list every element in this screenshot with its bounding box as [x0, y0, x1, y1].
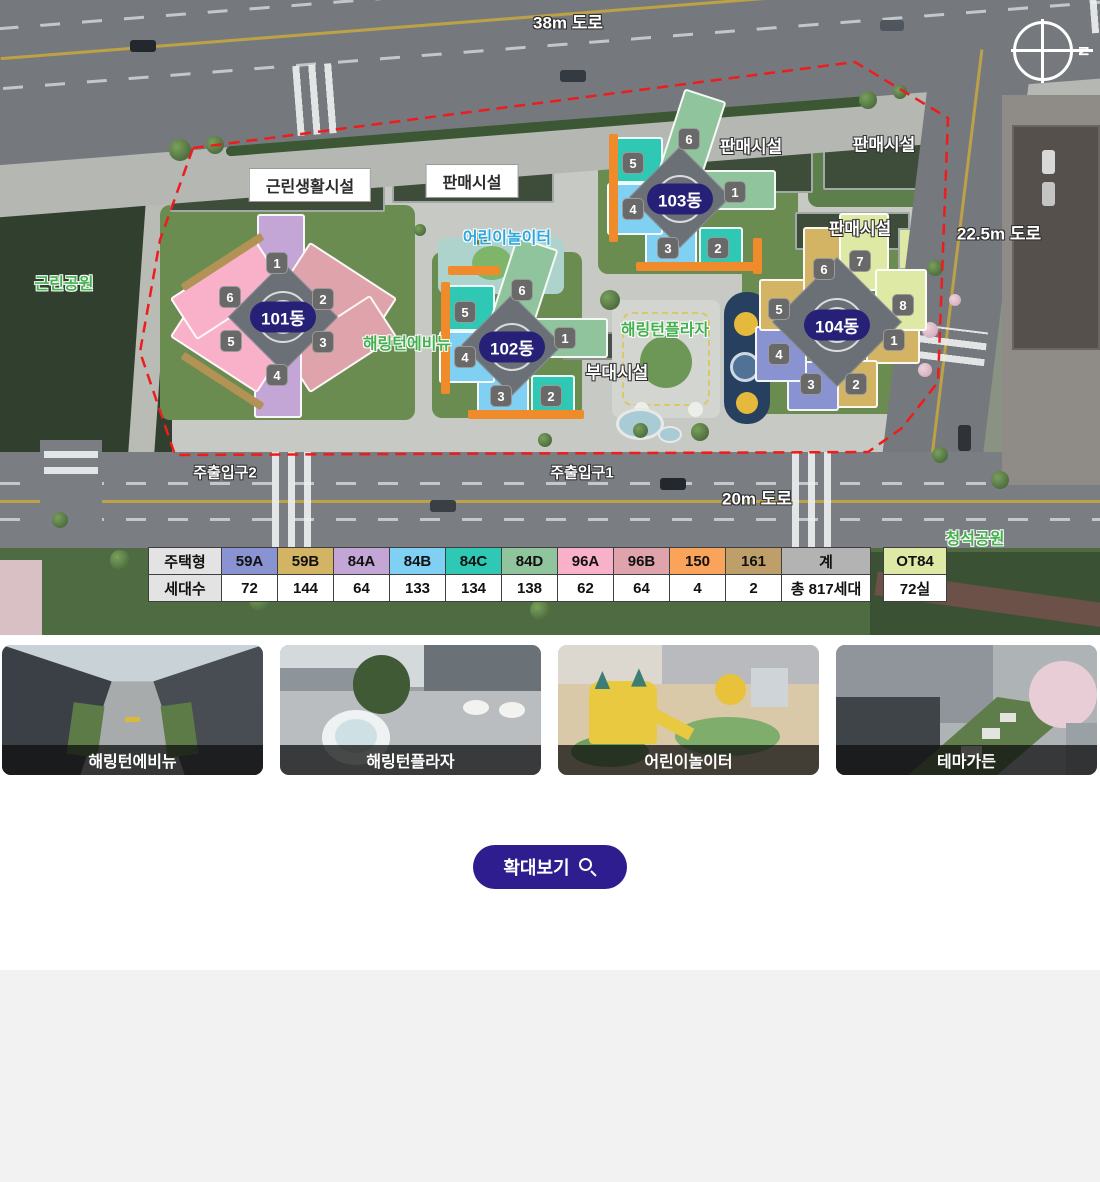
building-101-name-pill: 101동	[250, 302, 316, 333]
sales-facility-1-label: 판매시설	[426, 164, 519, 198]
type-cell-59A: 59A	[222, 548, 277, 574]
building-103-trim	[636, 262, 756, 271]
building-102-unit-chip-2: 2	[540, 385, 562, 407]
zoom-button-row: 확대보기	[0, 845, 1100, 889]
count-cell-96B: 64	[614, 575, 669, 601]
thumbnail-art	[499, 702, 525, 718]
entrance-2-label: 주출입구2	[193, 462, 257, 483]
thumbnail-art	[982, 728, 1000, 738]
building-104-unit-chip-3: 3	[800, 373, 822, 395]
magnifier-icon	[579, 858, 597, 876]
thumbnail-art	[353, 655, 410, 714]
zoom-in-button[interactable]: 확대보기	[473, 845, 626, 889]
thumbnail-label-theme-garden: 테마가든	[836, 745, 1097, 775]
road-20m-label: 20m 도로	[722, 485, 792, 510]
unit-count-row-header: 세대수	[149, 575, 221, 601]
count-cell-59A: 72	[222, 575, 277, 601]
children-playground-label: 어린이놀이터	[463, 224, 551, 248]
count-cell-84A: 64	[334, 575, 389, 601]
building-102-name-pill: 102동	[479, 332, 545, 363]
type-cell-59B: 59B	[278, 548, 333, 574]
road-22-5m-label: 22.5m 도로	[957, 220, 1041, 245]
building-102-unit-chip-1: 1	[554, 327, 576, 349]
avenue-label: 해링턴에비뉴	[363, 330, 451, 354]
building-101-unit-chip-3: 3	[312, 331, 334, 353]
type-cell-96B: 96B	[614, 548, 669, 574]
building-102-trim	[448, 266, 500, 275]
thumbnail-label-plaza: 해링턴플라자	[280, 745, 541, 775]
count-cell-84D: 138	[502, 575, 557, 601]
building-102-unit-chip-5: 5	[454, 301, 476, 323]
count-cell-150: 4	[670, 575, 725, 601]
road-38m-label: 38m 도로	[533, 9, 603, 34]
amenity-thumbnails: 해링턴에비뉴해링턴플라자어린이놀이터테마가든	[2, 645, 1098, 775]
building-101-unit-chip-1: 1	[266, 252, 288, 274]
building-103-unit-chip-3: 3	[657, 237, 679, 259]
type-cell-84B: 84B	[390, 548, 445, 574]
building-104-unit-chip-2: 2	[845, 373, 867, 395]
thumbnail-art	[751, 668, 788, 707]
sales-facility-4-label: 판매시설	[829, 215, 892, 240]
zoom-button-label: 확대보기	[503, 854, 569, 880]
building-104-unit-chip-7: 7	[849, 250, 871, 272]
thumbnail-theme-garden[interactable]: 테마가든	[836, 645, 1097, 775]
neighborhood-facility-label: 근린생활시설	[249, 168, 371, 202]
site-plan-page: 123456101동123456102동123456103동1234567810…	[0, 0, 1100, 1182]
type-cell-84D: 84D	[502, 548, 557, 574]
building-103-unit-chip-2: 2	[707, 237, 729, 259]
sales-facility-3-label: 판매시설	[853, 131, 916, 156]
thumbnail-art	[1000, 713, 1016, 722]
building-103-trim	[609, 134, 618, 242]
building-104-unit-chip-8: 8	[892, 294, 914, 316]
building-101-unit-chip-4: 4	[266, 364, 288, 386]
plaza-label: 해링턴플라자	[621, 316, 709, 340]
building-104-unit-chip-4: 4	[768, 343, 790, 365]
building-104-unit-chip-6: 6	[813, 258, 835, 280]
building-103-trim	[753, 238, 762, 274]
park-bottom-right-label: 청석공원	[946, 525, 1005, 549]
thumbnail-playground[interactable]: 어린이놀이터	[558, 645, 819, 775]
building-104-unit-chip-1: 1	[883, 329, 905, 351]
count-cell-84C: 134	[446, 575, 501, 601]
thumbnail-art	[589, 681, 657, 743]
thumbnail-art	[463, 700, 489, 716]
building-104-name-pill: 104동	[804, 310, 870, 341]
building-101-unit-chip-5: 5	[220, 330, 242, 352]
thumbnail-plaza[interactable]: 해링턴플라자	[280, 645, 541, 775]
count-cell-59B: 144	[278, 575, 333, 601]
building-103-unit-chip-1: 1	[724, 181, 746, 203]
thumbnail-label-playground: 어린이놀이터	[558, 745, 819, 775]
compass-icon: N	[1013, 21, 1073, 81]
building-103-unit-chip-6: 6	[678, 128, 700, 150]
disclaimer-section: ! 상기 지역도 및 CG 이미지는 고객의 이해를 돕기 위해 제작된 것으로…	[0, 970, 1100, 1182]
unit-type-row-header: 주택형	[149, 548, 221, 574]
building-102-unit-chip-6: 6	[511, 279, 533, 301]
sales-facility-2-label: 판매시설	[720, 133, 783, 158]
thumbnail-art	[424, 645, 541, 694]
building-104-unit-chip-5: 5	[768, 298, 790, 320]
thumbnail-avenue[interactable]: 해링턴에비뉴	[2, 645, 263, 775]
type-cell-total: 계	[782, 548, 870, 574]
site-plan-map: 123456101동123456102동123456103동1234567810…	[0, 0, 1100, 635]
type-cell-OT84: OT84	[884, 548, 946, 574]
type-cell-84A: 84A	[334, 548, 389, 574]
count-cell-OT84: 72실	[884, 575, 946, 601]
unit-mix-table: 주택형59A59B84A84B84C84D96A96B150161계세대수721…	[148, 547, 947, 602]
building-102-unit-chip-4: 4	[454, 346, 476, 368]
thumbnail-art	[125, 717, 141, 722]
type-cell-84C: 84C	[446, 548, 501, 574]
annex-label: 부대시설	[586, 359, 649, 384]
building-102-unit-chip-3: 3	[490, 385, 512, 407]
thumbnail-label-avenue: 해링턴에비뉴	[2, 745, 263, 775]
park-left-label: 근린공원	[35, 270, 94, 294]
type-cell-96A: 96A	[558, 548, 613, 574]
type-cell-150: 150	[670, 548, 725, 574]
building-103-unit-chip-4: 4	[622, 198, 644, 220]
building-101-unit-chip-2: 2	[312, 288, 334, 310]
building-102-trim	[468, 410, 584, 419]
count-cell-96A: 62	[558, 575, 613, 601]
count-cell-161: 2	[726, 575, 781, 601]
type-cell-161: 161	[726, 548, 781, 574]
compass-north-label: N	[1076, 46, 1092, 56]
thumbnail-art	[715, 674, 746, 705]
entrance-1-label: 주출입구1	[550, 462, 614, 483]
building-103-unit-chip-5: 5	[622, 152, 644, 174]
count-cell-total: 총 817세대	[782, 575, 870, 601]
building-103-name-pill: 103동	[647, 184, 713, 215]
thumbnail-art	[1029, 661, 1097, 729]
building-101-unit-chip-6: 6	[219, 286, 241, 308]
count-cell-84B: 133	[390, 575, 445, 601]
